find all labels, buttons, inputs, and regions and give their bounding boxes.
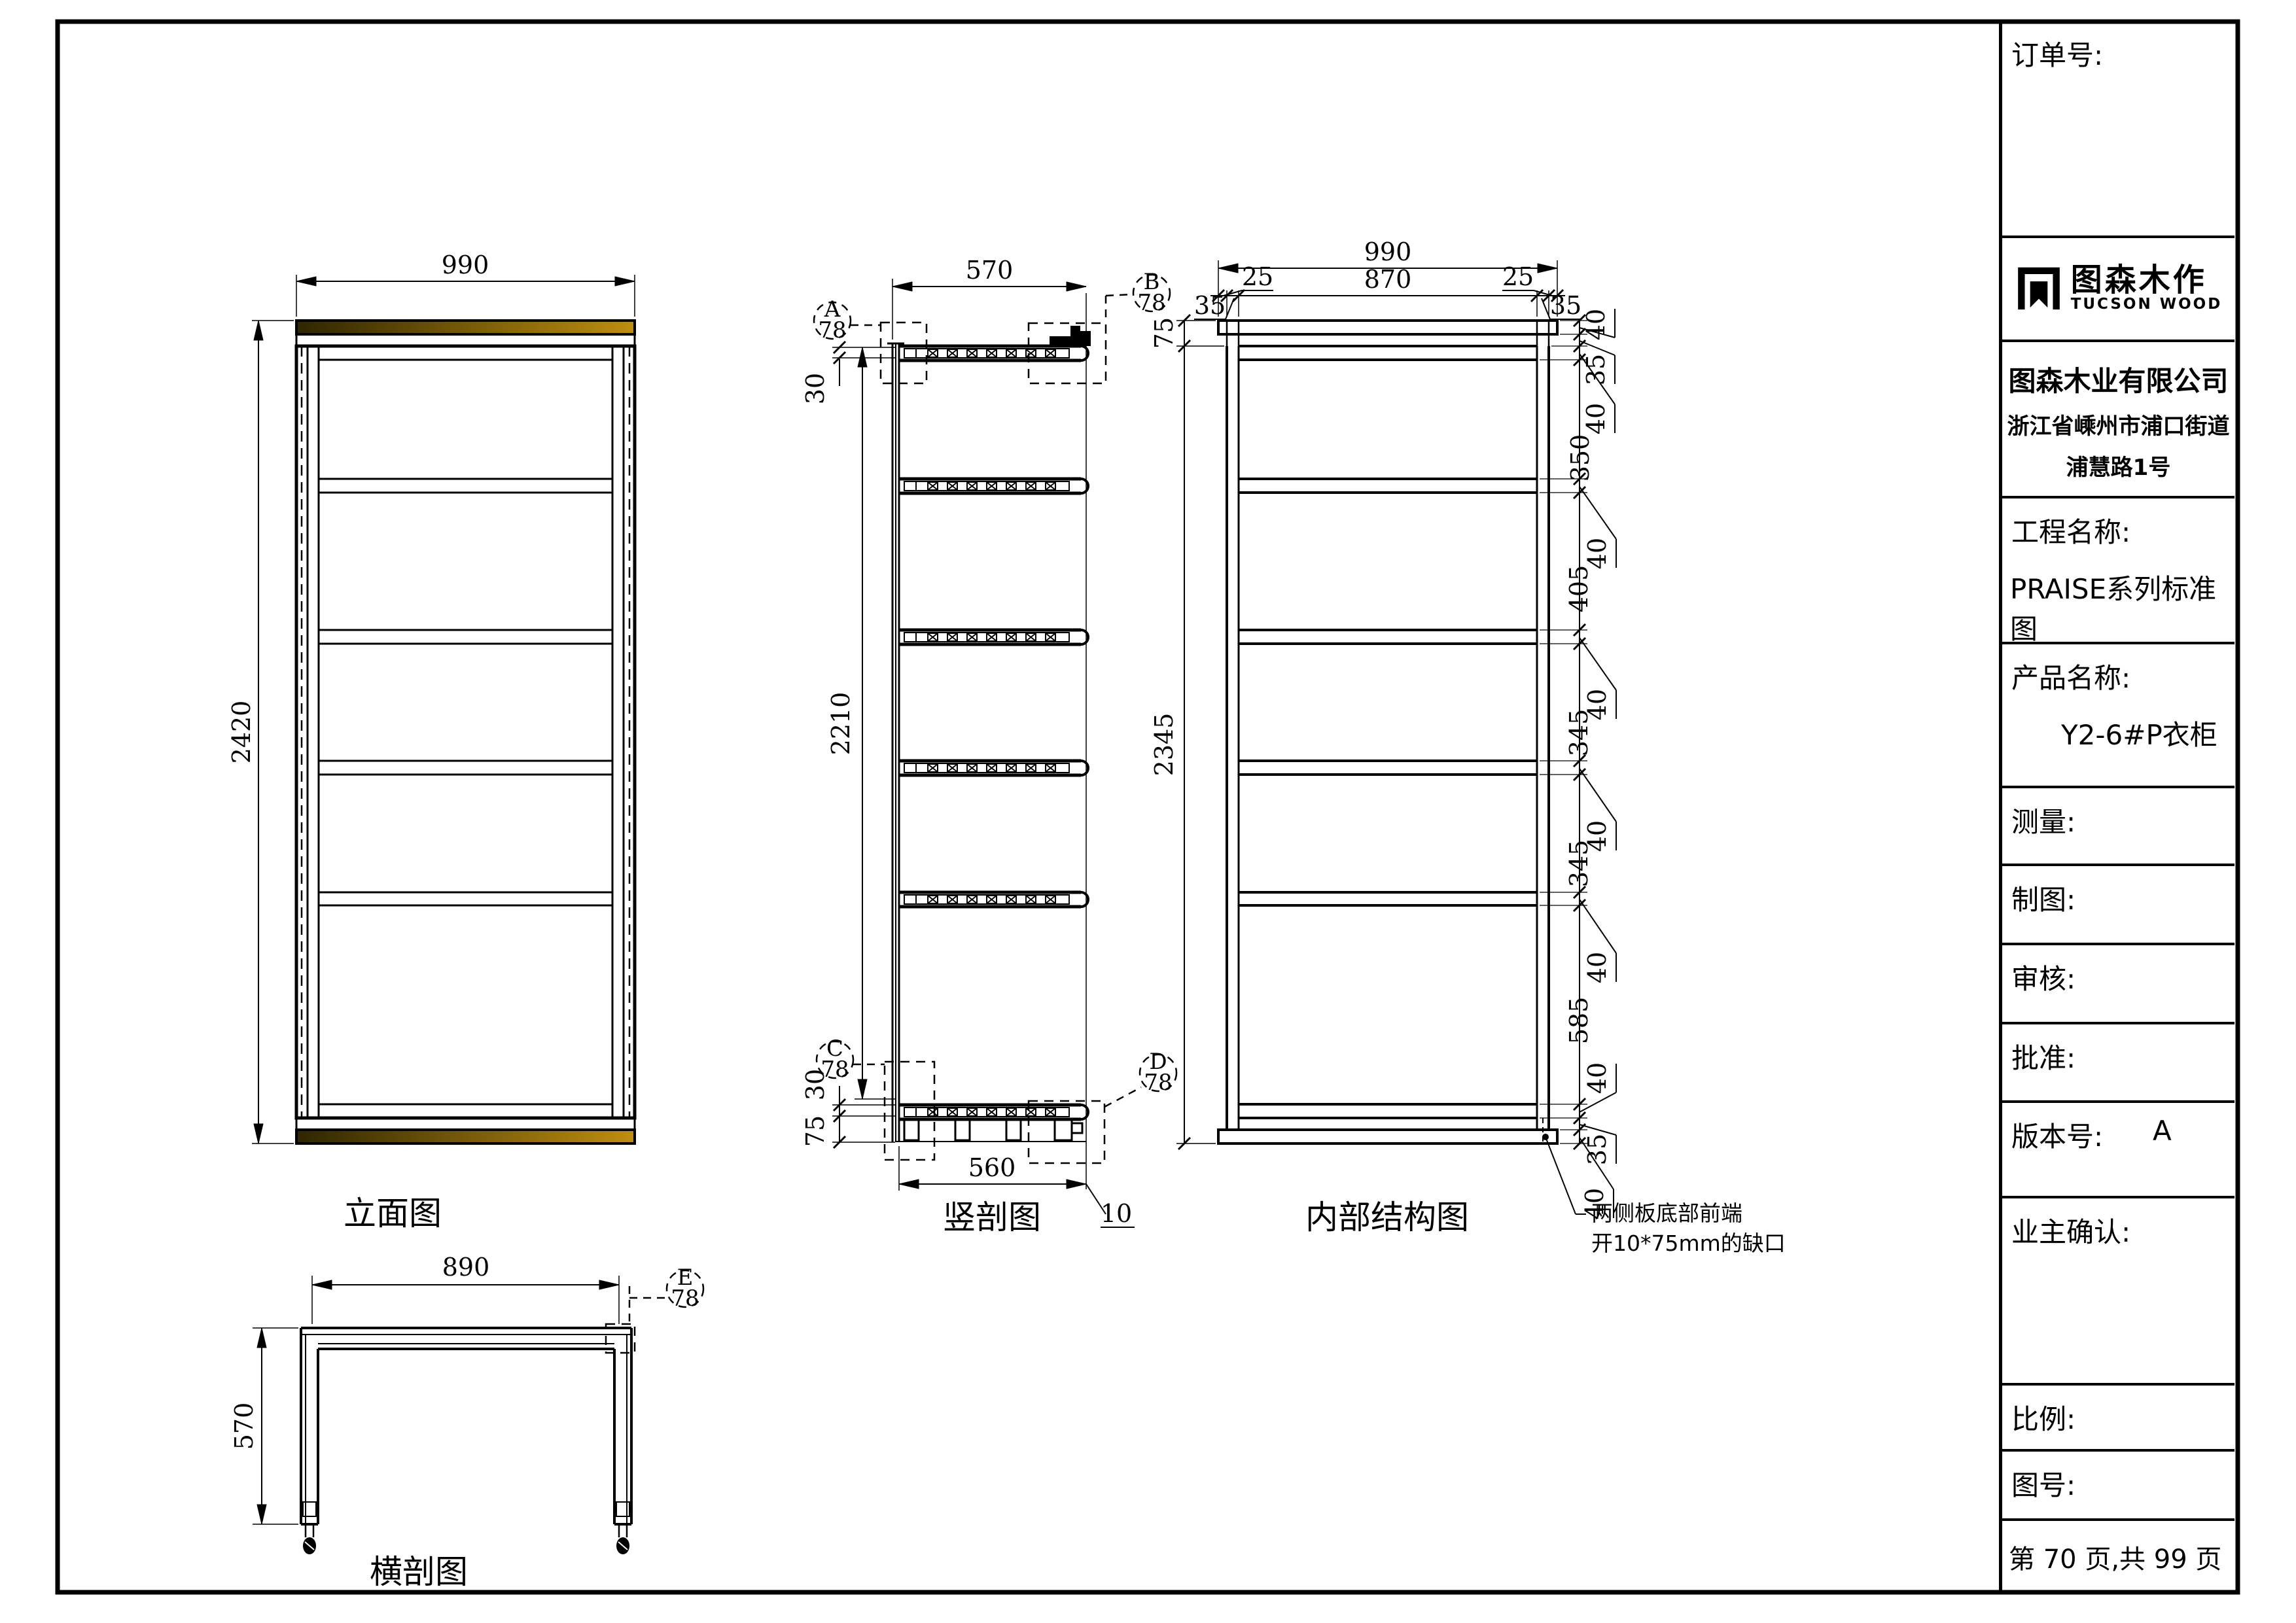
plan-depth-dim: 570 bbox=[230, 1403, 258, 1450]
callout-e-number: 78 bbox=[671, 1285, 699, 1312]
elevation-view-label: 立面图 bbox=[344, 1195, 442, 1232]
dim-section-depth: 570 bbox=[892, 256, 1086, 340]
dim-section-height: 2210 bbox=[826, 347, 895, 1099]
drawing-canvas: 990 2420 立面图 bbox=[0, 0, 2296, 1623]
caster-right-icon bbox=[616, 1537, 629, 1554]
drawing-sheet: 990 2420 立面图 bbox=[0, 0, 2296, 1623]
dim-plan-depth: 570 bbox=[230, 1328, 298, 1524]
elevation-width-dim: 990 bbox=[442, 251, 489, 279]
callout-e: E 78 bbox=[606, 1265, 703, 1353]
owner-confirm-label: 业主确认: bbox=[2002, 1198, 2234, 1250]
dim-elevation-height: 2420 bbox=[227, 321, 294, 1143]
tucson-wood-logo-icon bbox=[2015, 265, 2063, 313]
dim-plan-width: 890 bbox=[312, 1253, 619, 1324]
chain-dim-2: 40 bbox=[1581, 403, 1610, 434]
internal-top-offset-dim: 75 bbox=[1150, 317, 1178, 349]
hanging-bracket bbox=[1050, 326, 1091, 346]
section-depth-dim: 570 bbox=[966, 256, 1014, 285]
chain-dim-12: 40 bbox=[1583, 1062, 1612, 1094]
callout-a-number: 78 bbox=[818, 317, 846, 343]
view-internal bbox=[1218, 321, 1557, 1143]
internal-edge-left-dim: 25 bbox=[1242, 262, 1273, 291]
version-label: 版本号: bbox=[2002, 1103, 2234, 1155]
note-line2: 开10*75mm的缺口 bbox=[1591, 1230, 1786, 1256]
section-front-gap-dim: 10 bbox=[1101, 1199, 1132, 1228]
chain-dim-7: 345 bbox=[1564, 709, 1593, 757]
drafting-label: 制图: bbox=[2002, 866, 2234, 918]
page-number: 第 70 页,共 99 页 bbox=[2002, 1521, 2234, 1576]
dim-elevation-width: 990 bbox=[296, 251, 635, 317]
dim-internal-top: 990 870 25 25 35 35 bbox=[1194, 237, 1581, 320]
company-name: 图森木业有限公司 bbox=[2002, 359, 2234, 399]
section-foot75-dim: 75 bbox=[801, 1115, 830, 1147]
dim-internal-right-chain: 40 35 40 350 40 405 40 345 40 345 40 585… bbox=[1540, 309, 1616, 1219]
project-name-label: 工程名称: bbox=[2002, 498, 2234, 550]
elevation-height-dim: 2420 bbox=[227, 701, 256, 764]
section-view-label: 竖剖图 bbox=[943, 1198, 1041, 1236]
dim-internal-left: 75 2345 bbox=[1150, 315, 1224, 1149]
section-height-dim: 2210 bbox=[826, 692, 855, 756]
callout-c-number: 78 bbox=[821, 1056, 849, 1083]
company-address-1: 浙江省嵊州市浦口街道 bbox=[2002, 408, 2234, 440]
section-bottom-depth-dim: 560 bbox=[968, 1153, 1016, 1182]
caster-left-icon bbox=[303, 1537, 316, 1554]
approve-label: 批准: bbox=[2002, 1024, 2234, 1076]
chain-dim-3: 350 bbox=[1566, 434, 1595, 482]
chain-dim-1: 35 bbox=[1581, 354, 1610, 385]
internal-body-height-dim: 2345 bbox=[1150, 713, 1178, 777]
internal-view-label: 内部结构图 bbox=[1305, 1198, 1469, 1236]
callout-b-number: 78 bbox=[1137, 290, 1165, 316]
company-logo: 图森木作 TUCSON WOOD bbox=[2002, 238, 2234, 342]
chain-dim-10: 40 bbox=[1583, 952, 1612, 983]
view-plan bbox=[301, 1328, 631, 1554]
drawing-number-label: 图号: bbox=[2002, 1452, 2234, 1503]
internal-inner-width-dim: 870 bbox=[1364, 265, 1412, 294]
chain-dim-4: 40 bbox=[1583, 538, 1612, 569]
chain-dim-11: 585 bbox=[1564, 997, 1593, 1045]
chain-dim-0: 40 bbox=[1581, 309, 1610, 340]
chain-dim-9: 345 bbox=[1564, 840, 1593, 888]
chain-dim-5: 405 bbox=[1564, 565, 1593, 613]
internal-total-width-dim: 990 bbox=[1364, 237, 1412, 266]
view-section bbox=[887, 293, 1091, 1189]
callout-a: A 78 bbox=[814, 296, 927, 383]
product-name-label: 产品名称: bbox=[2002, 644, 2234, 696]
view-elevation bbox=[296, 321, 635, 1143]
internal-side-left-dim: 35 bbox=[1194, 291, 1226, 320]
logo-en-text: TUCSON WOOD bbox=[2071, 296, 2223, 314]
review-label: 审核: bbox=[2002, 945, 2234, 997]
sheet-frame bbox=[58, 22, 2238, 1592]
project-name-value: PRAISE系列标准图 bbox=[2002, 550, 2234, 644]
product-name-value: Y2-6#P衣柜 bbox=[2002, 696, 2234, 753]
plan-width-dim: 890 bbox=[442, 1253, 490, 1282]
scale-label: 比例: bbox=[2002, 1386, 2234, 1437]
plan-view-label: 横剖图 bbox=[370, 1553, 468, 1591]
note-line1: 两侧板底部前端 bbox=[1591, 1200, 1742, 1226]
internal-edge-right-dim: 25 bbox=[1502, 262, 1534, 291]
order-number-label: 订单号: bbox=[2002, 22, 2234, 73]
measure-label: 测量: bbox=[2002, 788, 2234, 840]
logo-cn-text: 图森木作 bbox=[2071, 264, 2223, 296]
title-block: 订单号: 图森木作 TUCSON WOOD 图森木业有限公司 浙江省嵊州市浦口街… bbox=[1999, 22, 2234, 1592]
section-top30-dim: 30 bbox=[801, 373, 830, 404]
version-value: A bbox=[2153, 1115, 2172, 1147]
callout-d-number: 78 bbox=[1144, 1070, 1172, 1096]
company-address-2: 浦慧路1号 bbox=[2002, 449, 2234, 481]
internal-side-right-dim: 35 bbox=[1550, 291, 1581, 320]
